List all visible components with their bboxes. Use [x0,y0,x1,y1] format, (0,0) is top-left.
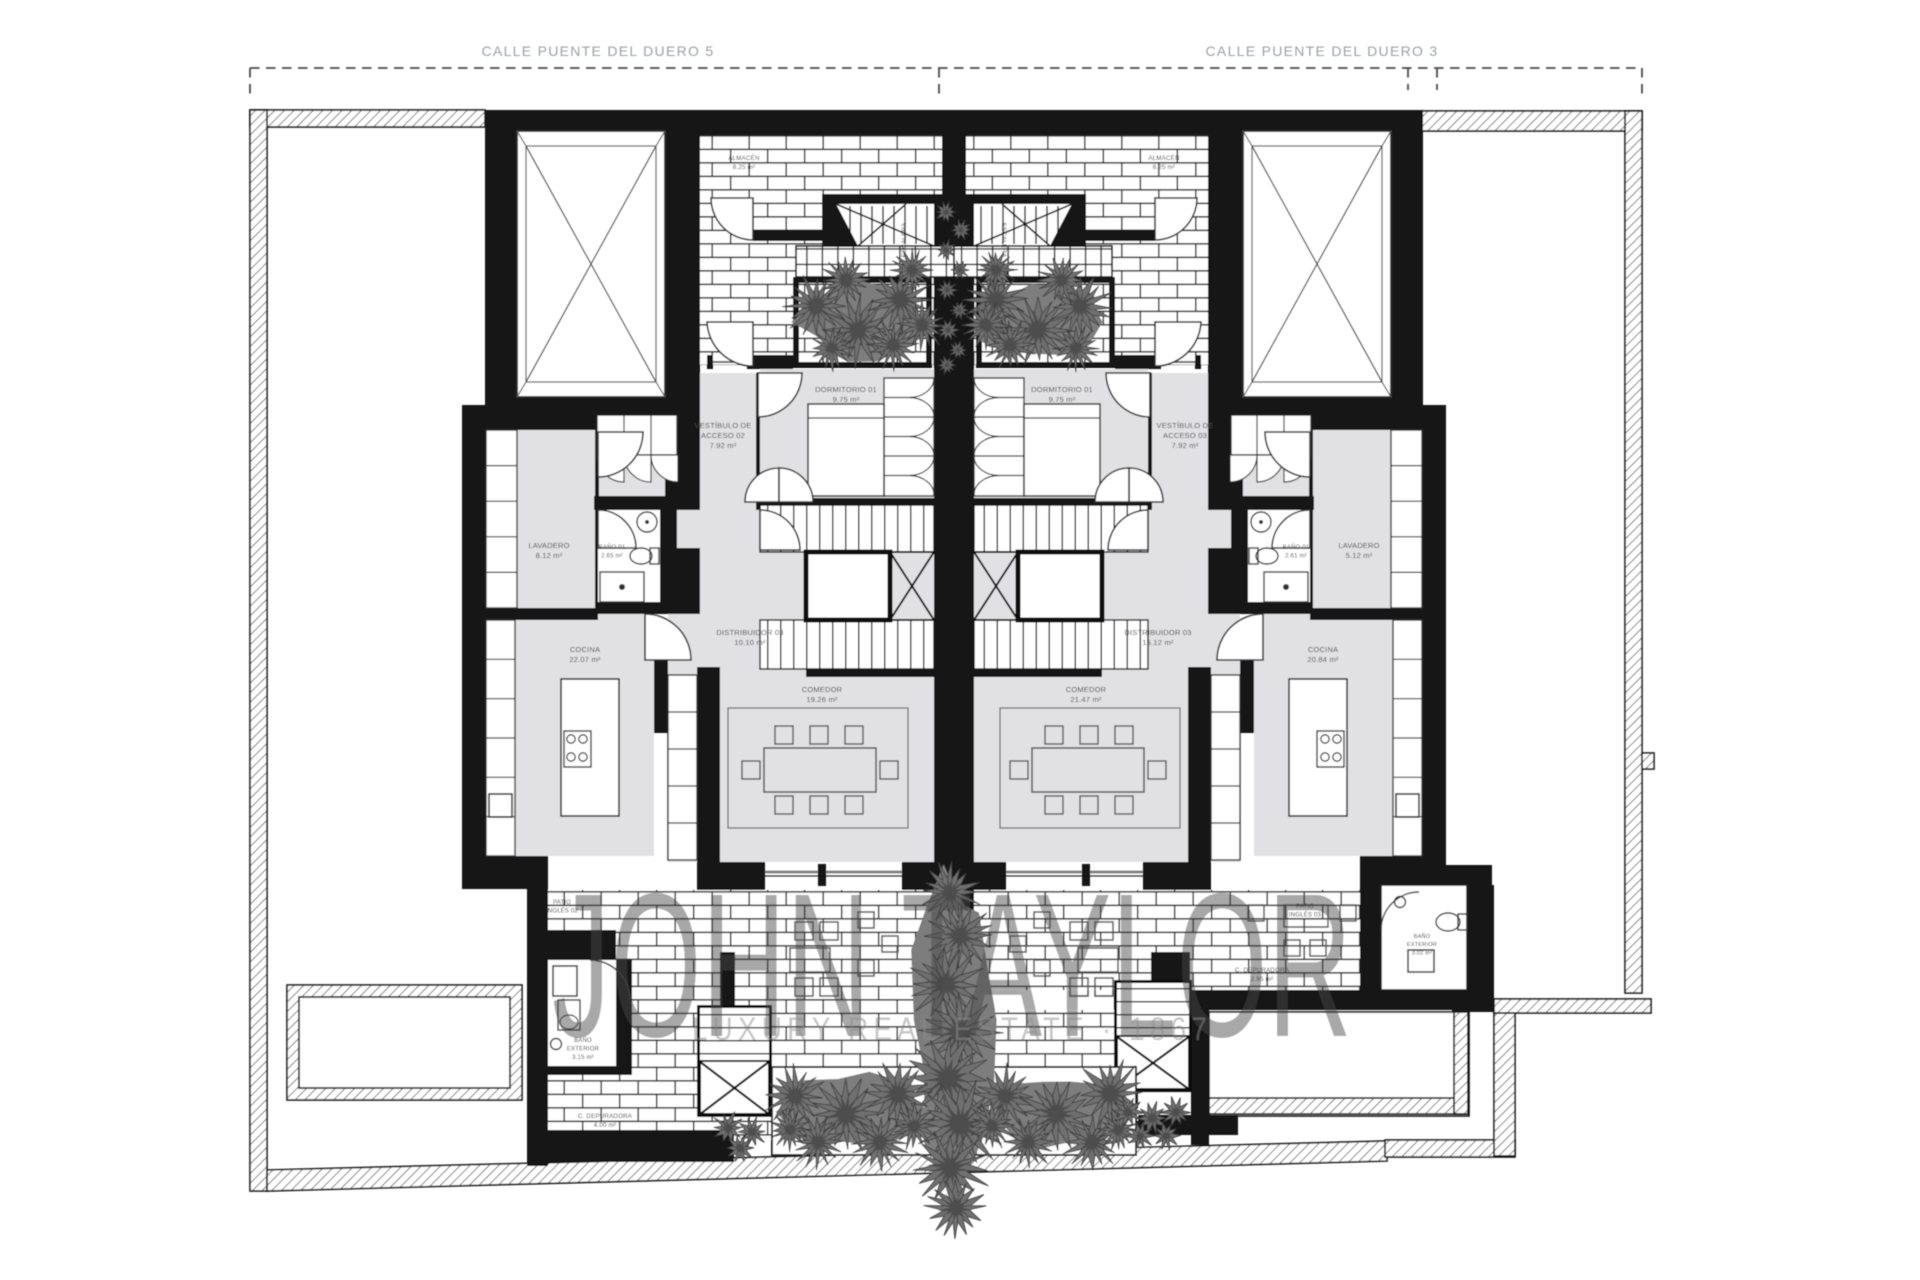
svg-text:2.65 m²: 2.65 m² [601,554,623,560]
svg-text:5.12 m²: 5.12 m² [1346,551,1373,560]
svg-text:8.25 m²: 8.25 m² [733,164,755,171]
svg-text:ALMACÉN: ALMACÉN [1148,155,1179,162]
svg-text:ACCESO 02: ACCESO 02 [701,431,745,440]
svg-text:C. DEPURADORA: C. DEPURADORA [578,1113,633,1120]
svg-text:ESCALERA: ESCALERA [1000,223,1007,258]
svg-text:EXTERIOR: EXTERIOR [1407,942,1437,948]
svg-text:9.75 m²: 9.75 m² [1049,395,1076,404]
svg-text:10.10 m²: 10.10 m² [734,638,765,647]
svg-text:ESCALERA: ESCALERA [901,222,908,257]
svg-text:COCINA: COCINA [570,645,600,654]
svg-text:LUXURY REAL ESTATE · 1867: LUXURY REAL ESTATE · 1867 [692,1011,1212,1047]
svg-text:DORMITORIO 01: DORMITORIO 01 [1031,385,1093,394]
svg-text:19.26 m²: 19.26 m² [806,695,837,704]
svg-text:3.02 m²: 3.02 m² [1412,950,1432,956]
svg-text:LAVADERO: LAVADERO [528,541,569,550]
svg-text:9.75 m²: 9.75 m² [833,395,860,404]
svg-text:ALMACÉN: ALMACÉN [728,155,759,162]
svg-text:LAVADERO: LAVADERO [1338,541,1379,550]
svg-text:22.07 m²: 22.07 m² [569,655,600,664]
svg-text:20.84 m²: 20.84 m² [1307,655,1338,664]
svg-text:DISTRIBUIDOR 03: DISTRIBUIDOR 03 [716,628,783,637]
svg-text:ACCESO 03: ACCESO 03 [1163,431,1207,440]
svg-text:VESTÍBULO DE: VESTÍBULO DE [695,421,752,430]
svg-text:8.25 m²: 8.25 m² [1153,164,1175,171]
svg-text:8.12 m²: 8.12 m² [536,551,563,560]
svg-text:21.47 m²: 21.47 m² [1070,695,1101,704]
svg-text:7.92 m²: 7.92 m² [1172,441,1199,450]
svg-text:15.12 m²: 15.12 m² [1142,638,1173,647]
svg-text:7.92 m²: 7.92 m² [710,441,737,450]
svg-text:BAÑO 01: BAÑO 01 [599,544,626,551]
svg-text:VESTÍBULO DE: VESTÍBULO DE [1157,421,1214,430]
svg-text:CALLE PUENTE DEL DUERO 3: CALLE PUENTE DEL DUERO 3 [1206,43,1439,59]
svg-text:COCINA: COCINA [1308,645,1338,654]
svg-text:DISTRIBUIDOR 03: DISTRIBUIDOR 03 [1124,628,1191,637]
svg-text:COMEDOR: COMEDOR [1066,685,1107,694]
svg-text:CALLE PUENTE DEL DUERO 5: CALLE PUENTE DEL DUERO 5 [482,43,715,59]
svg-text:DORMITORIO 01: DORMITORIO 01 [815,385,877,394]
svg-text:COMEDOR: COMEDOR [802,685,843,694]
svg-text:BAÑO: BAÑO [1414,933,1431,940]
svg-text:2.61 m²: 2.61 m² [1285,554,1307,560]
svg-text:BAÑO 01: BAÑO 01 [1283,544,1310,551]
svg-text:4.00 m²: 4.00 m² [594,1122,616,1129]
